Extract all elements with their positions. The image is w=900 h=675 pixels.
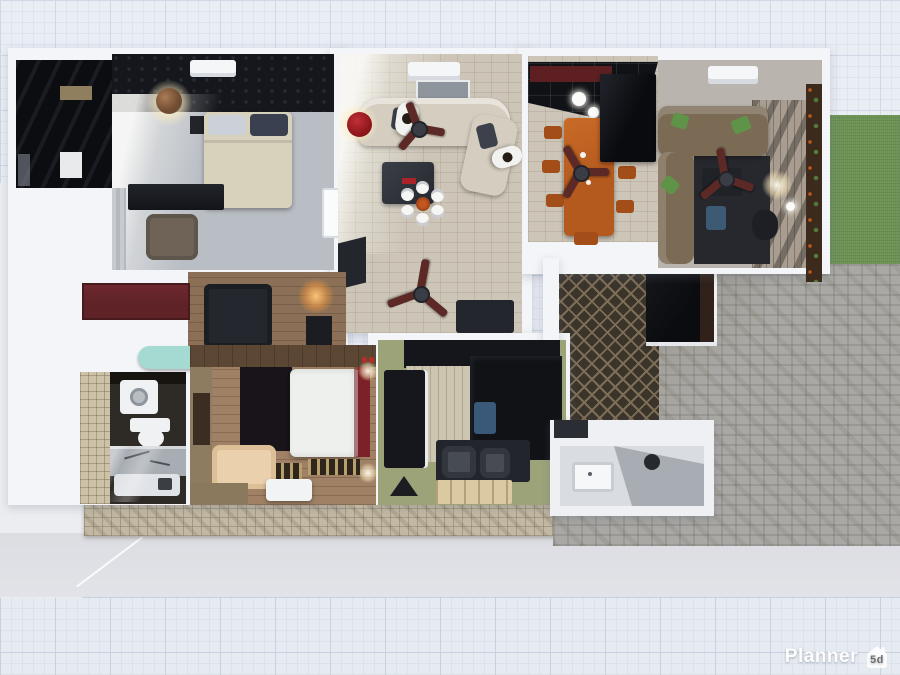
ceiling-fan [693, 146, 757, 210]
pillow [208, 115, 246, 135]
white-chair [416, 181, 429, 194]
grid-foreground-band [0, 597, 900, 675]
room-bathroom [80, 372, 186, 504]
storage-white-cabinet [60, 152, 82, 178]
bedroom2-top-wall [190, 345, 376, 367]
pendant-ball-lamp-icon [156, 88, 182, 114]
room-bedroom2 [190, 345, 376, 505]
ceiling-fan [390, 100, 446, 156]
kitchen-dark-wedge [390, 476, 418, 496]
dining-chair [544, 126, 562, 139]
white-chair [401, 205, 414, 218]
master-nightstand [190, 116, 204, 134]
room-master-bedroom [112, 54, 334, 270]
dark-tile-patio [556, 262, 659, 438]
planner5d-logo-icon: 5d [864, 645, 890, 669]
white-chair [431, 189, 444, 202]
air-conditioner-icon [408, 62, 460, 81]
deck-chair [752, 210, 778, 240]
master-armchair [146, 214, 198, 260]
bed2 [290, 369, 360, 457]
duvet-fold [204, 140, 292, 143]
pergola-canopy [646, 262, 717, 342]
hall-bench [456, 300, 514, 333]
planner5d-watermark: Planner 5d [785, 645, 890, 669]
bathroom-tile-wall [80, 372, 110, 504]
washer-door [130, 388, 148, 406]
family-sofa-chaise [658, 152, 694, 264]
white-chair [416, 213, 429, 226]
storage-window [18, 154, 30, 186]
room-living [338, 54, 522, 333]
room-utility [550, 420, 714, 516]
red-slippers [369, 357, 374, 363]
storage-shelf-box [60, 86, 92, 100]
kitchen-blue-screen [474, 402, 496, 434]
ceiling-fan [384, 257, 456, 329]
den-sofa [204, 284, 272, 348]
white-nightstand [266, 479, 312, 501]
white-chair [401, 188, 414, 201]
toilet-bowl [138, 428, 164, 448]
room-family [658, 60, 822, 268]
bedroom2-bottom-wall [190, 483, 248, 505]
slat-bench [308, 459, 360, 475]
sconce-glow [358, 361, 378, 381]
sconce-glow [762, 170, 792, 200]
kitchen-tall-cabinet [384, 370, 428, 468]
deck-lamp-icon [786, 202, 795, 211]
red-book [402, 178, 416, 184]
red-slippers [362, 357, 367, 363]
stone-facade-strip [84, 503, 560, 536]
shower-glass [110, 446, 186, 502]
pendant-light-icon [572, 92, 586, 106]
dining-chair [616, 200, 634, 213]
garden-trellis [806, 84, 822, 282]
door [193, 393, 210, 445]
kitchen-island [436, 440, 530, 482]
washing-machine [120, 380, 158, 414]
watermark-badge-text: 5d [870, 654, 884, 666]
faucet [588, 472, 592, 476]
utility-sink [572, 462, 614, 492]
round-table [416, 197, 430, 211]
ironing-board [138, 346, 196, 369]
master-dresser [128, 184, 224, 210]
warm-lamp-glow [298, 278, 334, 314]
utility-dark-item [554, 420, 588, 438]
dining-chair [618, 166, 636, 179]
room-kitchen [378, 340, 566, 505]
red-floor-lamp-icon [347, 112, 372, 137]
pendant-light-icon [588, 107, 599, 118]
maroon-wardrobe [82, 283, 190, 320]
headboard-wall [240, 367, 292, 451]
sconce-glow [358, 463, 378, 483]
air-conditioner-icon [190, 60, 236, 77]
sink-basin [442, 446, 476, 478]
sink-basin [480, 448, 510, 478]
wood-pallet-mat [436, 480, 512, 504]
floorplan-render: Planner 5d [0, 0, 900, 675]
dining-chair [574, 232, 598, 245]
utility-drain [644, 454, 660, 470]
media-cabinet [600, 74, 656, 162]
lawn [828, 115, 900, 268]
watermark-brand-text: Planner [785, 646, 858, 668]
room-storage [16, 60, 112, 188]
air-conditioner-icon [708, 66, 758, 84]
closet-stripe-rug [112, 188, 126, 270]
pillow-dark [250, 114, 288, 136]
white-chair [431, 205, 444, 218]
